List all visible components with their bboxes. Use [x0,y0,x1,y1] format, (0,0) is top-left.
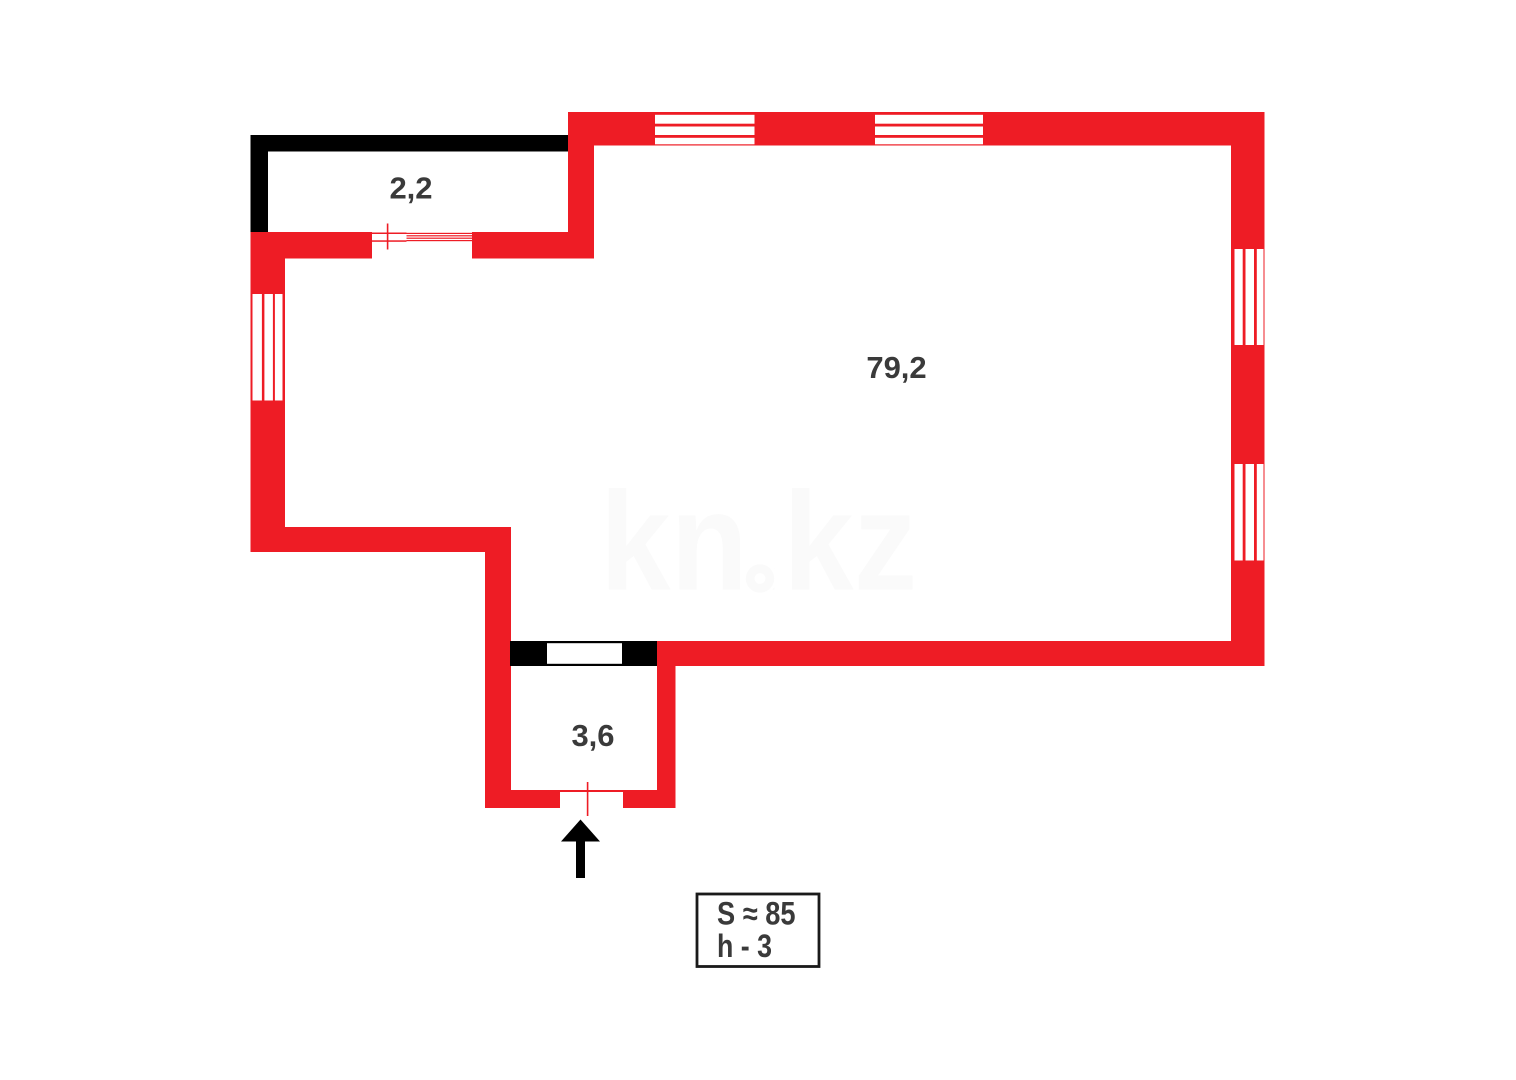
svg-text:3,6: 3,6 [571,718,614,753]
svg-text:S ≈ 85: S ≈ 85 [717,896,796,932]
svg-text:kn.kz: kn.kz [600,463,917,620]
svg-text:79,2: 79,2 [866,350,926,385]
svg-text:2,2: 2,2 [389,171,432,206]
svg-text:h - 3: h - 3 [717,928,772,964]
